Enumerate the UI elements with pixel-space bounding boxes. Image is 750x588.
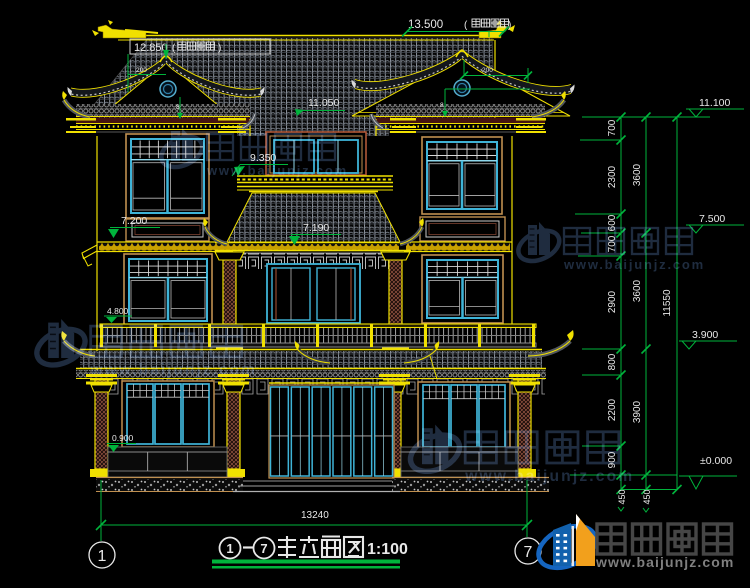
svg-text:7.190: 7.190 <box>303 222 329 234</box>
svg-text:www.baijunjz.com: www.baijunjz.com <box>563 257 705 272</box>
svg-text:7: 7 <box>524 544 533 561</box>
svg-text:): ) <box>508 20 511 31</box>
svg-text:13.500: 13.500 <box>408 19 443 31</box>
svg-text:1: 1 <box>98 548 107 565</box>
svg-text:3600: 3600 <box>632 163 643 186</box>
svg-text:1:100: 1:100 <box>367 541 408 558</box>
svg-text:700: 700 <box>607 235 618 252</box>
svg-text:7.500: 7.500 <box>699 213 725 225</box>
svg-text:1: 1 <box>226 541 233 556</box>
svg-text:7.200: 7.200 <box>121 215 147 227</box>
svg-text:www.baijunjz.com: www.baijunjz.com <box>464 468 634 485</box>
svg-text:www.baijunjz.com: www.baijunjz.com <box>595 554 734 570</box>
svg-text:0.900: 0.900 <box>112 433 134 443</box>
svg-text:700: 700 <box>607 119 618 136</box>
svg-text:8: 8 <box>440 102 444 109</box>
svg-text:4.800: 4.800 <box>107 306 129 316</box>
svg-text:3.900: 3.900 <box>692 329 718 341</box>
svg-text:450: 450 <box>617 489 627 504</box>
svg-text:11.050: 11.050 <box>308 97 339 109</box>
svg-text:8: 8 <box>176 104 180 111</box>
svg-text:2300: 2300 <box>607 165 618 188</box>
svg-text:900: 900 <box>607 451 618 468</box>
svg-text:3900: 3900 <box>632 400 643 423</box>
svg-text:2200: 2200 <box>607 398 618 421</box>
svg-text:): ) <box>218 43 221 54</box>
svg-text:200: 200 <box>136 67 147 74</box>
svg-text:11550: 11550 <box>662 289 673 317</box>
svg-text:www.baijunjz.com: www.baijunjz.com <box>90 362 257 379</box>
svg-text:13240: 13240 <box>301 510 329 521</box>
svg-text:200: 200 <box>482 67 493 74</box>
svg-text:±0.000: ±0.000 <box>700 455 732 467</box>
svg-text:12.850: 12.850 <box>134 42 168 54</box>
svg-text:www.baijunjz.com: www.baijunjz.com <box>206 163 348 178</box>
svg-text:7: 7 <box>260 541 267 556</box>
svg-text:11.100: 11.100 <box>699 97 730 109</box>
svg-text:800: 800 <box>607 353 618 370</box>
svg-text:3600: 3600 <box>632 279 643 302</box>
svg-text:2900: 2900 <box>607 290 618 313</box>
svg-text:450: 450 <box>642 489 652 504</box>
